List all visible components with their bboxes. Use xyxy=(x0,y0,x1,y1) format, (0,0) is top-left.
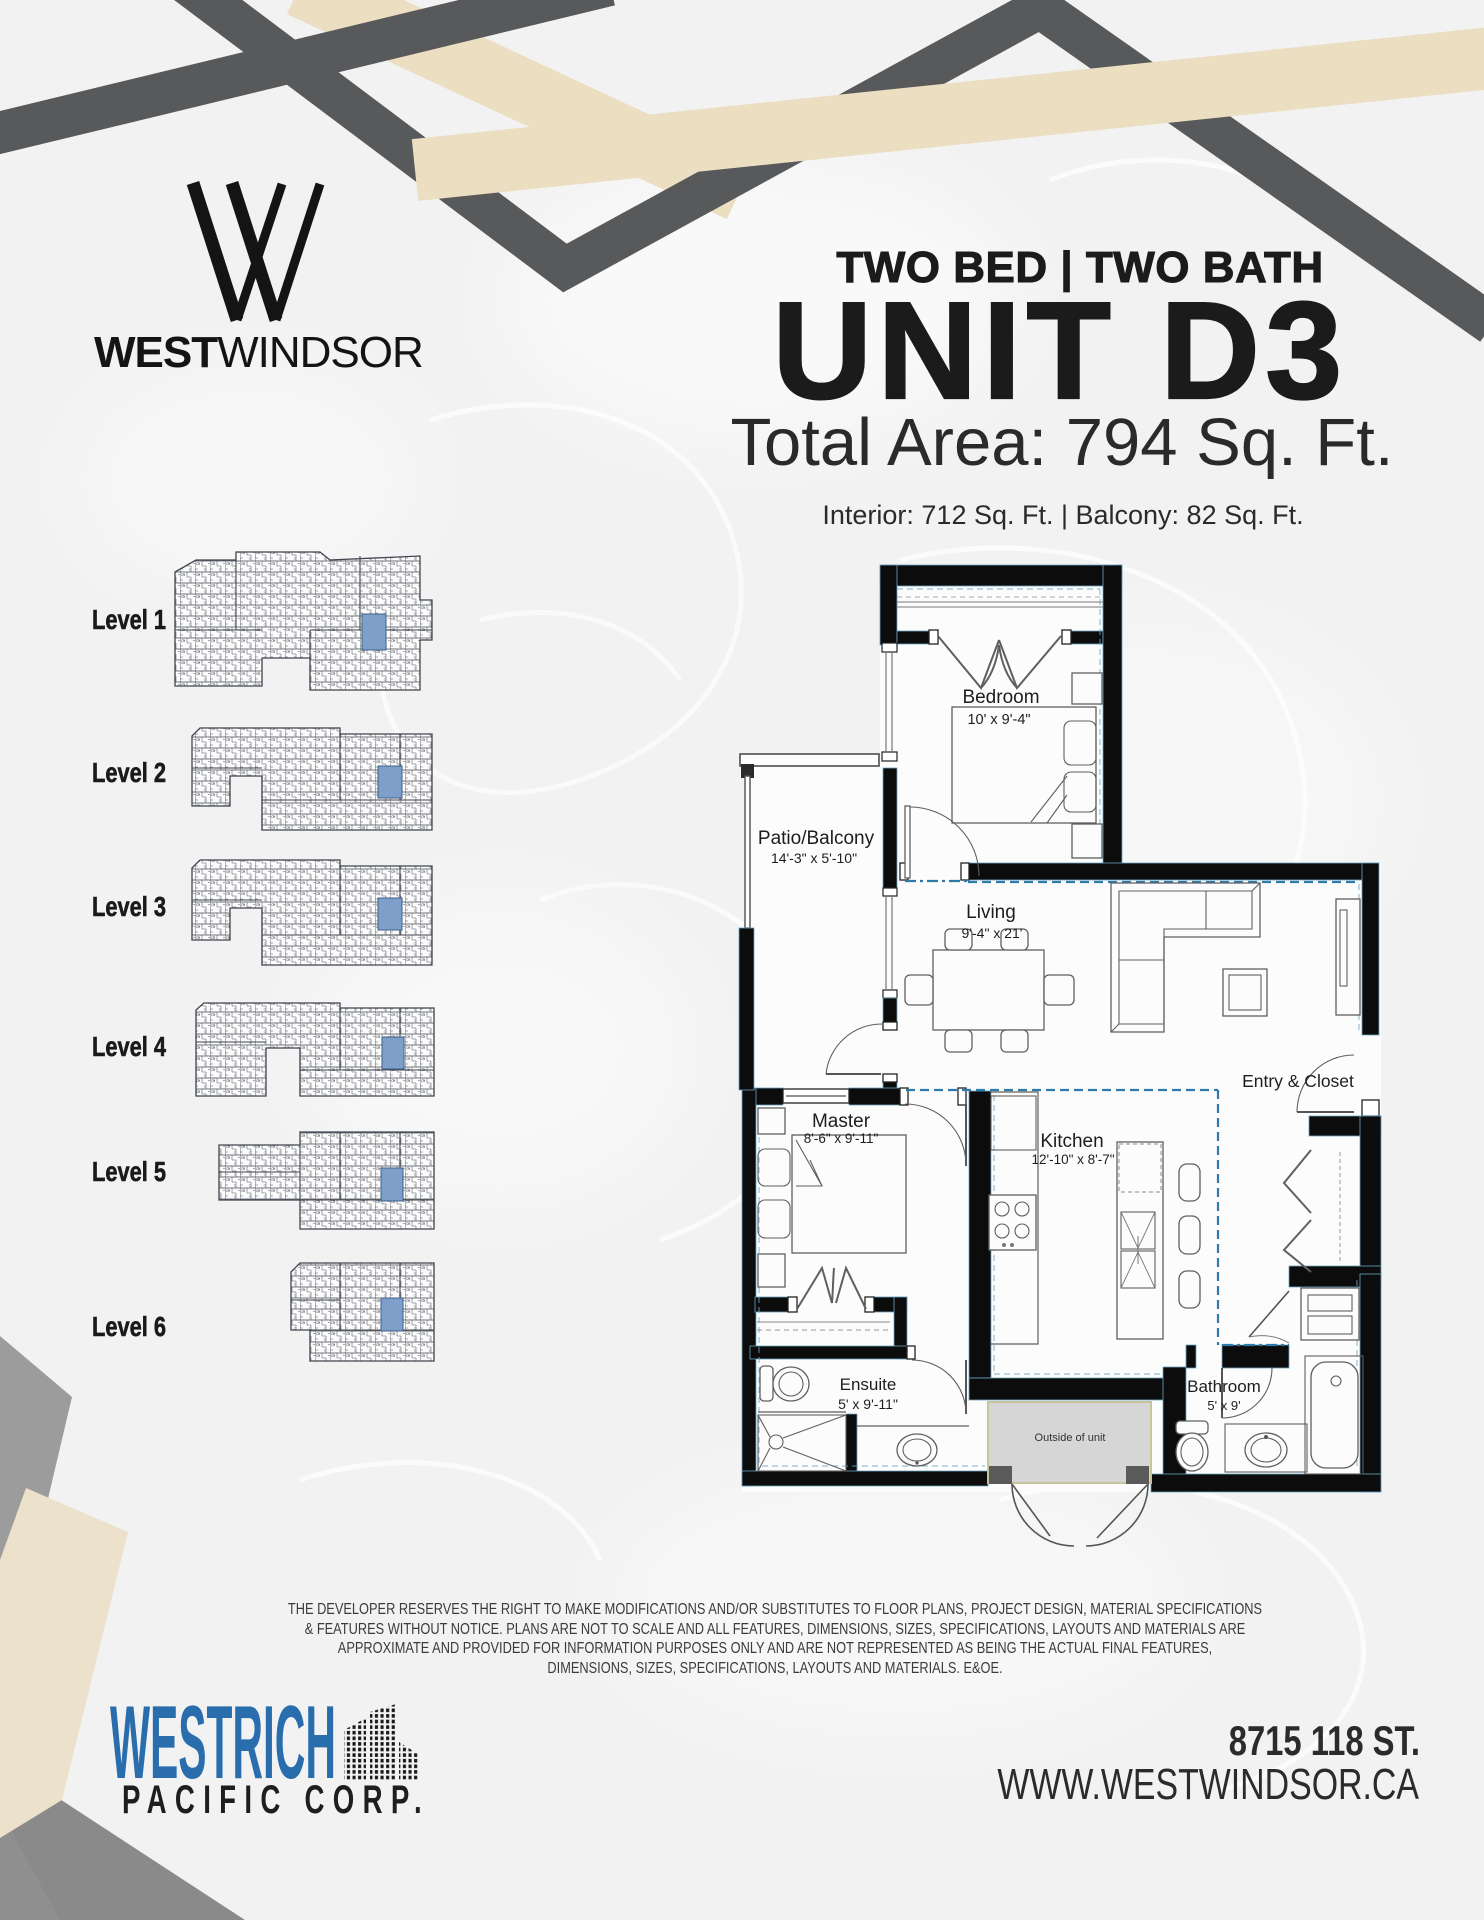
svg-text:5' x 9': 5' x 9' xyxy=(1207,1398,1240,1413)
svg-text:Master: Master xyxy=(812,1111,871,1132)
svg-text:10' x 9'-4": 10' x 9'-4" xyxy=(967,712,1030,728)
svg-text:5' x 9'-11": 5' x 9'-11" xyxy=(838,1396,898,1412)
svg-text:8'-6" x 9'-11": 8'-6" x 9'-11" xyxy=(804,1131,879,1146)
svg-text:Living: Living xyxy=(966,902,1016,923)
svg-text:Kitchen: Kitchen xyxy=(1040,1131,1103,1152)
svg-text:Patio/Balcony: Patio/Balcony xyxy=(758,828,875,849)
svg-text:Outside of unit: Outside of unit xyxy=(1035,1432,1106,1444)
svg-text:Ensuite: Ensuite xyxy=(840,1375,897,1394)
svg-text:Bedroom: Bedroom xyxy=(962,687,1039,708)
svg-text:14'-3" x 5'-10": 14'-3" x 5'-10" xyxy=(771,850,857,866)
svg-text:Bathroom: Bathroom xyxy=(1187,1377,1261,1396)
svg-text:9'-4" x 21': 9'-4" x 21' xyxy=(962,925,1023,941)
svg-text:PACIFIC CORP.: PACIFIC CORP. xyxy=(122,1778,430,1822)
svg-text:Entry & Closet: Entry & Closet xyxy=(1242,1071,1354,1091)
svg-text:12'-10" x 8'-7": 12'-10" x 8'-7" xyxy=(1031,1152,1114,1167)
